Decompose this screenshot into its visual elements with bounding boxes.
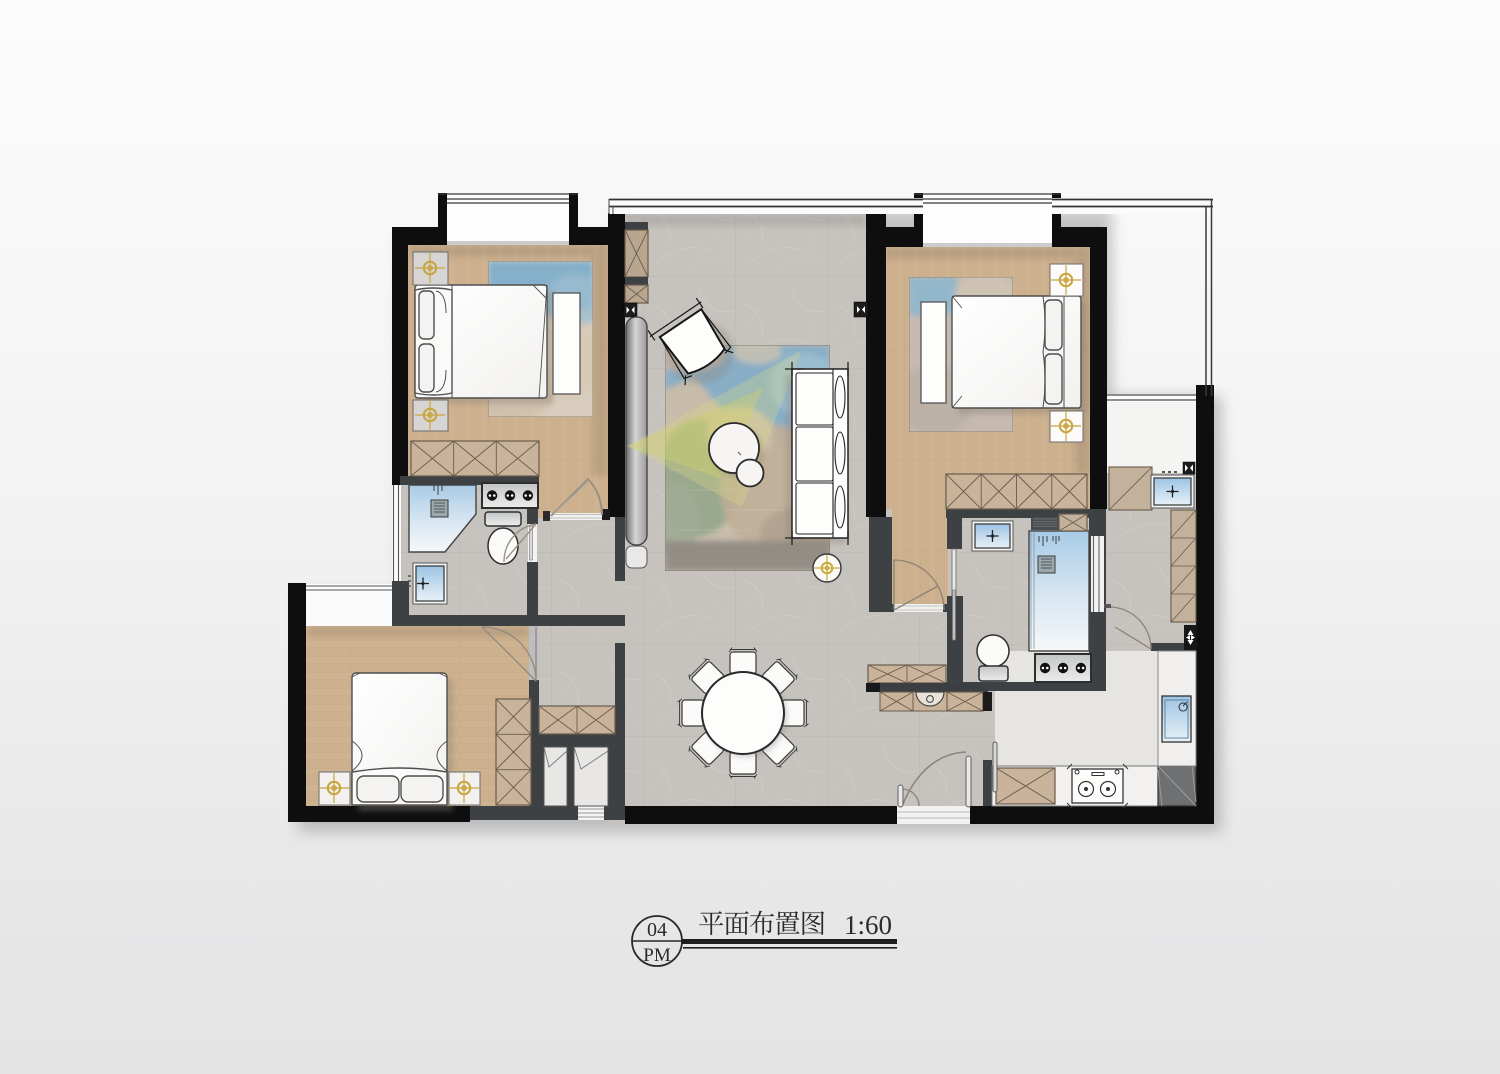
- svg-text:1:60: 1:60: [844, 910, 892, 940]
- svg-text:PM: PM: [643, 945, 671, 966]
- svg-text:04: 04: [647, 919, 667, 941]
